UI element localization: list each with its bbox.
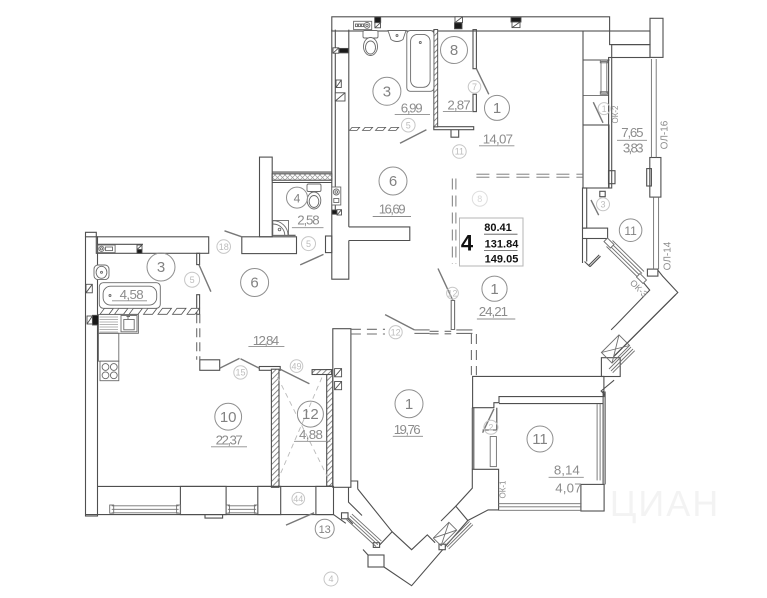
svg-text:22,37: 22,37 <box>216 433 243 448</box>
svg-text:13: 13 <box>319 524 331 536</box>
svg-text:149.05: 149.05 <box>485 254 519 266</box>
svg-text:3: 3 <box>157 259 165 276</box>
svg-text:ОЛ-16: ОЛ-16 <box>660 120 671 149</box>
svg-text:80.41: 80.41 <box>484 222 512 234</box>
svg-text:4,88: 4,88 <box>299 427 323 442</box>
svg-text:6: 6 <box>389 173 397 190</box>
svg-text:8,14: 8,14 <box>554 462 580 477</box>
svg-text:44: 44 <box>293 494 303 504</box>
svg-text:19,76: 19,76 <box>394 422 421 437</box>
svg-text:4,58: 4,58 <box>120 287 144 302</box>
svg-text:7,65: 7,65 <box>621 125 643 140</box>
svg-text:2,58: 2,58 <box>297 213 320 228</box>
svg-text:3: 3 <box>600 200 605 210</box>
svg-text:4: 4 <box>328 574 333 584</box>
svg-text:11: 11 <box>532 431 548 448</box>
svg-text:1: 1 <box>602 104 607 114</box>
svg-text:7: 7 <box>472 82 477 92</box>
svg-text:ЦИАН: ЦИАН <box>610 483 721 524</box>
svg-text:1: 1 <box>493 100 501 117</box>
svg-text:ОК-1: ОК-1 <box>499 480 508 499</box>
svg-text:14,07: 14,07 <box>483 131 513 146</box>
svg-text:16,69: 16,69 <box>379 202 406 217</box>
svg-text:24,21: 24,21 <box>479 304 508 319</box>
svg-text:5: 5 <box>190 275 195 285</box>
svg-text:5: 5 <box>406 120 411 130</box>
svg-text:8: 8 <box>477 194 482 204</box>
svg-text:4,07: 4,07 <box>555 481 581 496</box>
svg-text:1: 1 <box>490 281 498 298</box>
svg-text:2,87: 2,87 <box>447 97 470 112</box>
svg-text:10: 10 <box>220 409 237 426</box>
svg-text:15: 15 <box>235 368 245 378</box>
svg-text:6: 6 <box>250 275 258 292</box>
svg-text:ОК-2: ОК-2 <box>611 105 620 124</box>
svg-text:6,99: 6,99 <box>401 100 423 115</box>
svg-text:18: 18 <box>219 242 229 252</box>
svg-text:ОЛ-14: ОЛ-14 <box>663 241 674 270</box>
svg-text:12: 12 <box>391 327 401 337</box>
svg-text:11: 11 <box>624 224 637 238</box>
svg-text:12,84: 12,84 <box>253 333 279 348</box>
svg-text:12: 12 <box>447 288 457 298</box>
svg-text:8: 8 <box>450 42 458 59</box>
svg-text:4: 4 <box>294 191 301 205</box>
svg-text:3: 3 <box>383 84 391 101</box>
svg-text:49: 49 <box>291 361 301 371</box>
svg-text:12: 12 <box>302 406 319 423</box>
svg-text:131.84: 131.84 <box>485 238 520 250</box>
svg-text:4: 4 <box>461 231 474 256</box>
svg-text:3,83: 3,83 <box>623 141 644 156</box>
svg-text:5: 5 <box>306 239 311 249</box>
svg-text:2: 2 <box>488 423 493 433</box>
svg-text:11: 11 <box>455 147 464 157</box>
svg-text:1: 1 <box>405 396 413 413</box>
